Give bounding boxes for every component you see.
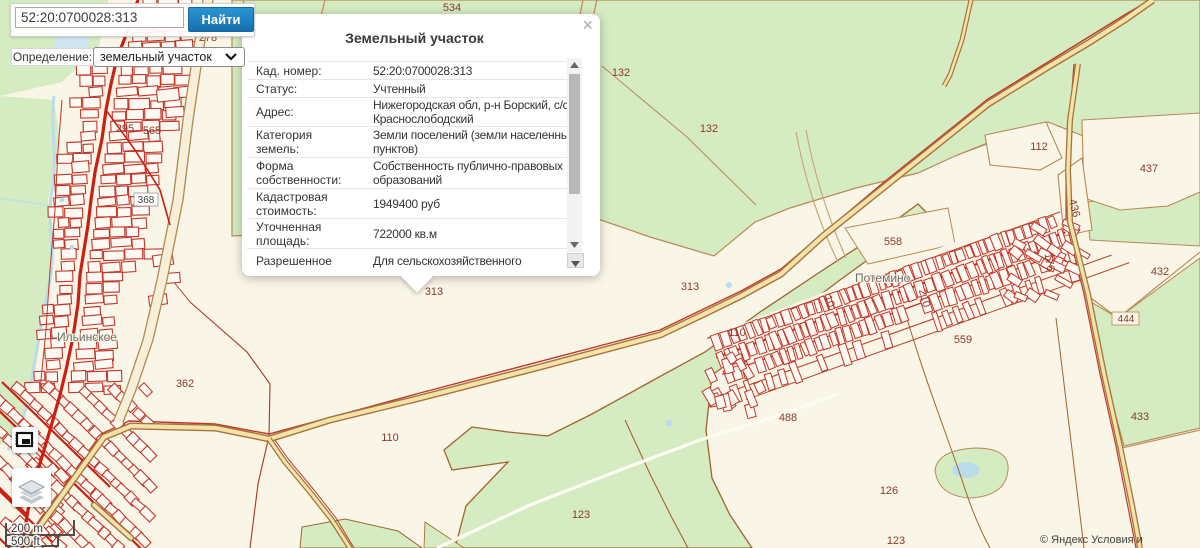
svg-text:437: 437 xyxy=(1140,163,1158,175)
svg-text:123: 123 xyxy=(572,509,590,521)
svg-text:Ильинское: Ильинское xyxy=(57,330,117,344)
svg-text:362: 362 xyxy=(176,378,194,390)
svg-text:500 ft: 500 ft xyxy=(11,536,41,548)
svg-text:565: 565 xyxy=(143,125,161,137)
svg-text:444: 444 xyxy=(1118,314,1135,325)
svg-text:559: 559 xyxy=(954,334,972,346)
svg-text:132: 132 xyxy=(700,123,718,135)
svg-text:295: 295 xyxy=(116,123,134,135)
svg-text:Потемино: Потемино xyxy=(855,271,911,285)
svg-text:433: 433 xyxy=(1131,411,1149,423)
svg-text:110: 110 xyxy=(728,327,746,339)
svg-text:432: 432 xyxy=(1151,266,1169,278)
svg-text:368: 368 xyxy=(138,195,155,206)
svg-text:313: 313 xyxy=(681,281,699,293)
svg-text:123: 123 xyxy=(887,535,905,547)
svg-text:126: 126 xyxy=(880,485,898,497)
svg-text:488: 488 xyxy=(779,412,797,424)
svg-text:112: 112 xyxy=(1030,141,1048,153)
svg-text:534: 534 xyxy=(443,2,461,14)
svg-text:132: 132 xyxy=(612,67,630,79)
svg-text:313: 313 xyxy=(425,286,443,298)
svg-text:© Яндекс Условия и: © Яндекс Условия и xyxy=(1040,534,1143,546)
svg-text:110: 110 xyxy=(381,432,399,444)
svg-text:558: 558 xyxy=(884,236,902,248)
svg-text:200 m: 200 m xyxy=(11,523,43,535)
